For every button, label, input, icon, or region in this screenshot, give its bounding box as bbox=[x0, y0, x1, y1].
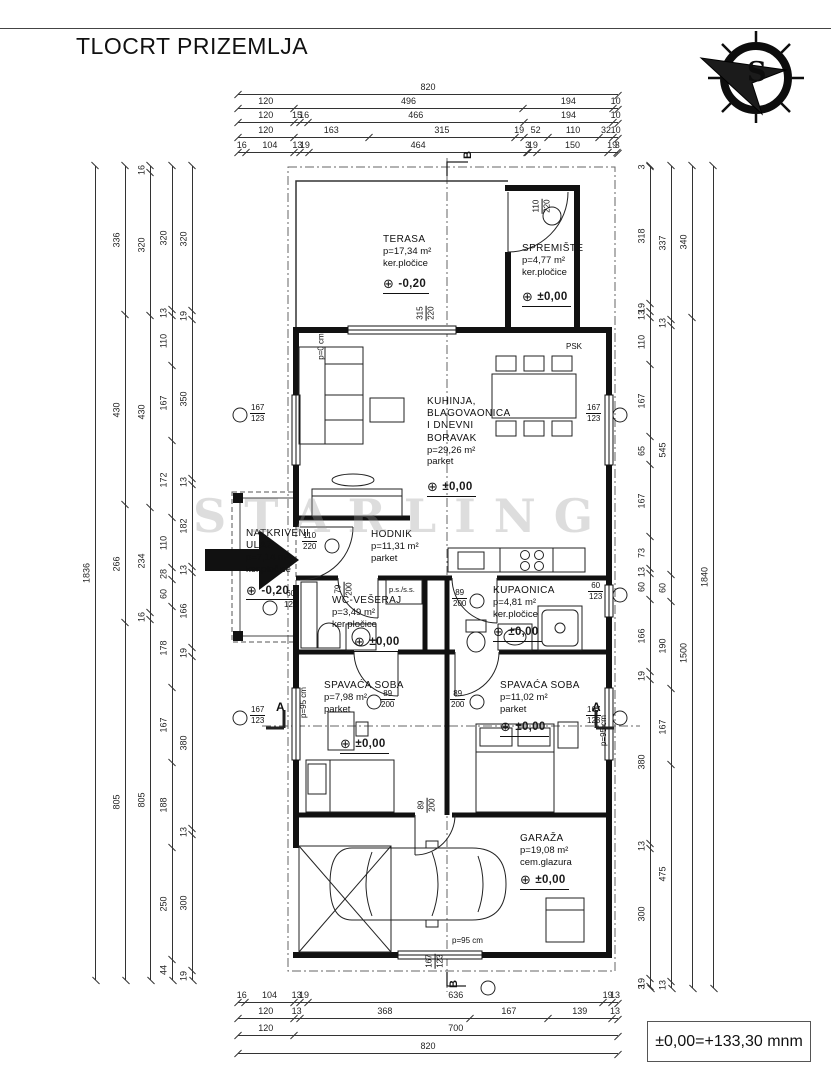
room-label-terasa: TERASA p=17,34 m² ker.pločice ⊕ -0,20 bbox=[383, 234, 431, 294]
door-size-label: 110220 bbox=[302, 531, 317, 551]
room-area: p=29,26 m² bbox=[427, 445, 511, 457]
room-area: p=7,14 m² bbox=[246, 552, 309, 564]
room-area: p=4,77 m² bbox=[522, 255, 583, 267]
room-label-spavaca-soba-2: SPAVAĆA SOBA p=11,02 m² parket ⊕ ±0,00 bbox=[500, 680, 580, 737]
door-size-label: 89200 bbox=[452, 588, 467, 608]
room-label-wc: WC-VEŠERAJ p=3,49 m² ker.pločice ⊕ ±0,00 bbox=[332, 595, 403, 652]
room-floor: cem.glazura bbox=[520, 857, 572, 869]
window-size-label: 60123 bbox=[588, 581, 603, 601]
level-icon: ⊕ bbox=[493, 625, 504, 640]
door-size-label: 89200 bbox=[380, 689, 395, 709]
room-name: NATKRIVENI ULAZ bbox=[246, 528, 309, 552]
parapet-label: p=95 cm bbox=[599, 715, 608, 746]
level-icon: ⊕ bbox=[427, 480, 438, 495]
window-size-label: 60123 bbox=[283, 589, 298, 609]
room-label-garaza: GARAŽA p=19,08 m² cem.glazura ⊕ ±0,00 bbox=[520, 833, 572, 890]
room-label-ulaz: NATKRIVENI ULAZ p=7,14 m² ker.pločice ⊕ … bbox=[246, 528, 309, 600]
level-marker: ⊕ ±0,00 bbox=[493, 621, 542, 642]
level-icon: ⊕ bbox=[500, 720, 511, 735]
door-size-label: 110220 bbox=[532, 198, 552, 213]
room-area: p=3,49 m² bbox=[332, 607, 403, 619]
floor-plan-page: { "title": "TLOCRT PRIZEMLJA", "footer":… bbox=[0, 0, 831, 1080]
door-size-label: 89200 bbox=[417, 797, 437, 812]
door-size-label: 79200 bbox=[334, 581, 354, 596]
section-mark-a-left: A bbox=[276, 700, 285, 714]
room-floor: ker.pločice bbox=[493, 609, 555, 621]
window-size-label: 167123 bbox=[250, 403, 265, 423]
level-marker: ⊕ ±0,00 bbox=[427, 476, 476, 497]
room-area: p=11,31 m² bbox=[371, 541, 419, 553]
parapet-label: p=95 cm bbox=[299, 687, 308, 718]
room-floor: parket bbox=[427, 456, 511, 468]
level-icon: ⊕ bbox=[354, 635, 365, 650]
section-mark-b-bottom: B bbox=[448, 980, 460, 988]
parapet-label: p=0 cm bbox=[317, 333, 326, 359]
parapet-label: p=95 cm bbox=[452, 936, 483, 945]
room-name: SPREMIŠTE bbox=[522, 243, 583, 255]
room-label-spremiste: SPREMIŠTE p=4,77 m² ker.pločice ⊕ ±0,00 bbox=[522, 243, 583, 307]
room-name: WC-VEŠERAJ bbox=[332, 595, 403, 607]
level-marker: ⊕ -0,20 bbox=[383, 273, 429, 294]
room-area: p=17,34 m² bbox=[383, 246, 431, 258]
room-area: p=19,08 m² bbox=[520, 845, 572, 857]
level-marker: ⊕ ±0,00 bbox=[354, 631, 403, 652]
washer-dryer-label: p.s./s.s. bbox=[389, 585, 415, 594]
room-floor: ker.pločice bbox=[522, 267, 583, 279]
room-floor: ker.pločice bbox=[332, 619, 403, 631]
room-area: p=4,81 m² bbox=[493, 597, 555, 609]
level-icon: ⊕ bbox=[522, 290, 533, 305]
door-size-label: 315220 bbox=[416, 305, 436, 320]
window-size-label: 167123 bbox=[425, 953, 445, 968]
room-name: HODNIK bbox=[371, 529, 419, 541]
room-name: TERASA bbox=[383, 234, 431, 246]
level-icon: ⊕ bbox=[246, 584, 257, 599]
level-icon: ⊕ bbox=[383, 277, 394, 292]
room-label-hodnik: HODNIK p=11,31 m² parket bbox=[371, 529, 419, 564]
room-name: GARAŽA bbox=[520, 833, 572, 845]
window-size-label: 167123 bbox=[586, 403, 601, 423]
level-marker: ⊕ ±0,00 bbox=[520, 869, 569, 890]
door-size-label: 89200 bbox=[450, 689, 465, 709]
room-name: KUPAONICA bbox=[493, 585, 555, 597]
room-name: KUHINJA, BLAGOVAONICA I DNEVNI BORAVAK bbox=[427, 396, 511, 445]
section-mark-b-top: B bbox=[462, 151, 474, 159]
level-icon: ⊕ bbox=[520, 873, 531, 888]
room-floor: ker.pločice bbox=[246, 564, 309, 576]
room-label-kuhinja: KUHINJA, BLAGOVAONICA I DNEVNI BORAVAK p… bbox=[427, 396, 511, 497]
level-icon: ⊕ bbox=[340, 737, 351, 752]
room-floor: parket bbox=[371, 553, 419, 565]
level-marker: ⊕ ±0,00 bbox=[340, 733, 389, 754]
room-area: p=11,02 m² bbox=[500, 692, 580, 704]
psk-label: PSK bbox=[566, 342, 582, 351]
room-label-kupaonica: KUPAONICA p=4,81 m² ker.pločice ⊕ ±0,00 bbox=[493, 585, 555, 642]
room-name: SPAVAĆA SOBA bbox=[500, 680, 580, 692]
level-marker: ⊕ ±0,00 bbox=[500, 716, 549, 737]
room-floor: parket bbox=[500, 704, 580, 716]
level-marker: ⊕ ±0,00 bbox=[522, 286, 571, 307]
room-floor: ker.pločice bbox=[383, 258, 431, 270]
section-mark-a-right: A bbox=[592, 700, 601, 714]
window-size-label: 167123 bbox=[250, 705, 265, 725]
